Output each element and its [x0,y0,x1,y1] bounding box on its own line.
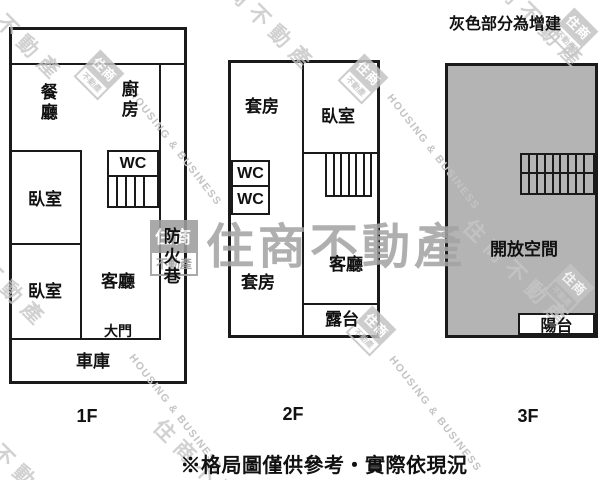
label-fire-lane-1f: 防火巷 [160,227,180,287]
floor-label-3f: 3F [501,406,555,427]
label-suite-top-2f: 套房 [245,97,279,117]
label-open-space-3f: 開放空間 [490,240,558,260]
disclaimer-text: ※格局圖僅供參考‧實際依現況為主 [176,449,472,480]
label-bedroom-2f: 臥室 [321,107,355,127]
addition-note: 灰色部分為增建 [449,10,561,34]
stair-tread [342,154,350,195]
stair-tread [335,154,343,195]
watermark-tile-text: 住商不動產 [0,396,69,480]
floorplan-canvas: 灰色部分為增建 WC 餐廳 廚房 臥室 臥室 客廳 大門 車庫 防火巷 WC W… [0,0,604,480]
wc-room-1f: WC [107,150,159,177]
wall-1f-bedroom-divider [12,243,80,245]
stair-tread [136,177,145,206]
label-wc1-2f: WC [233,162,268,185]
floorplan-3f: 開放空間 陽台 [445,63,598,338]
wall-1f-firelane [159,63,161,340]
stairs-2f [325,152,372,197]
stair-tread [365,154,371,195]
wc2-room-2f: WC [231,185,270,215]
stair-tread [522,174,530,193]
stair-tread [546,174,554,193]
wall-1f-bedroom-right [80,150,82,340]
stair-tread [350,154,358,195]
stairs-3f [520,153,595,195]
stair-tread [546,155,554,174]
label-wc-1f: WC [109,152,157,175]
stair-tread [118,177,127,206]
wall-1f-garage [12,338,161,340]
stair-tread [530,174,538,193]
stair-tread [585,174,593,193]
stair-tread [530,155,538,174]
wall-2f-divider [302,63,304,335]
label-dining-1f: 餐廳 [37,83,57,123]
stair-tread [522,155,530,174]
stair-tread [561,174,569,193]
stair-tread [145,177,157,206]
stair-tread [109,177,118,206]
stair-tread [585,155,593,174]
stairs-1f [107,175,159,208]
label-main-door-1f: 大門 [104,323,132,339]
stair-tread [127,177,136,206]
wall-1f-bedroom-top [12,150,80,152]
label-garage-1f: 車庫 [76,352,110,372]
stair-tread [561,155,569,174]
floorplan-1f: WC 餐廳 廚房 臥室 臥室 客廳 大門 車庫 防火巷 [9,27,187,384]
label-living-2f: 客廳 [329,255,363,275]
floor-label-1f: 1F [60,406,114,427]
stair-tread [569,155,577,174]
logo-top-text: 住商 [560,8,599,47]
stair-tread [357,154,365,195]
stair-tread [554,174,562,193]
label-bedroom2-1f: 臥室 [28,282,62,302]
floorplan-2f: WC WC 套房 臥室 套房 客廳 露台 [228,60,380,338]
stair-tread [538,155,546,174]
stair-tread [577,155,585,174]
stair-tread [577,174,585,193]
wc1-room-2f: WC [231,160,270,187]
label-suite-bottom-2f: 套房 [241,273,275,293]
floor-label-2f: 2F [266,404,320,425]
stair-tread [327,154,335,195]
wall-2f-terrace [302,303,377,305]
stair-tread [569,174,577,193]
label-kitchen-1f: 廚房 [118,80,138,120]
label-balcony-3f: 陽台 [520,315,593,333]
label-bedroom1-1f: 臥室 [28,190,62,210]
label-terrace-2f: 露台 [325,310,359,330]
balcony-3f: 陽台 [518,313,595,335]
label-living-1f: 客廳 [101,272,135,292]
label-wc2-2f: WC [233,187,268,213]
stair-tread [554,155,562,174]
stair-tread [538,174,546,193]
